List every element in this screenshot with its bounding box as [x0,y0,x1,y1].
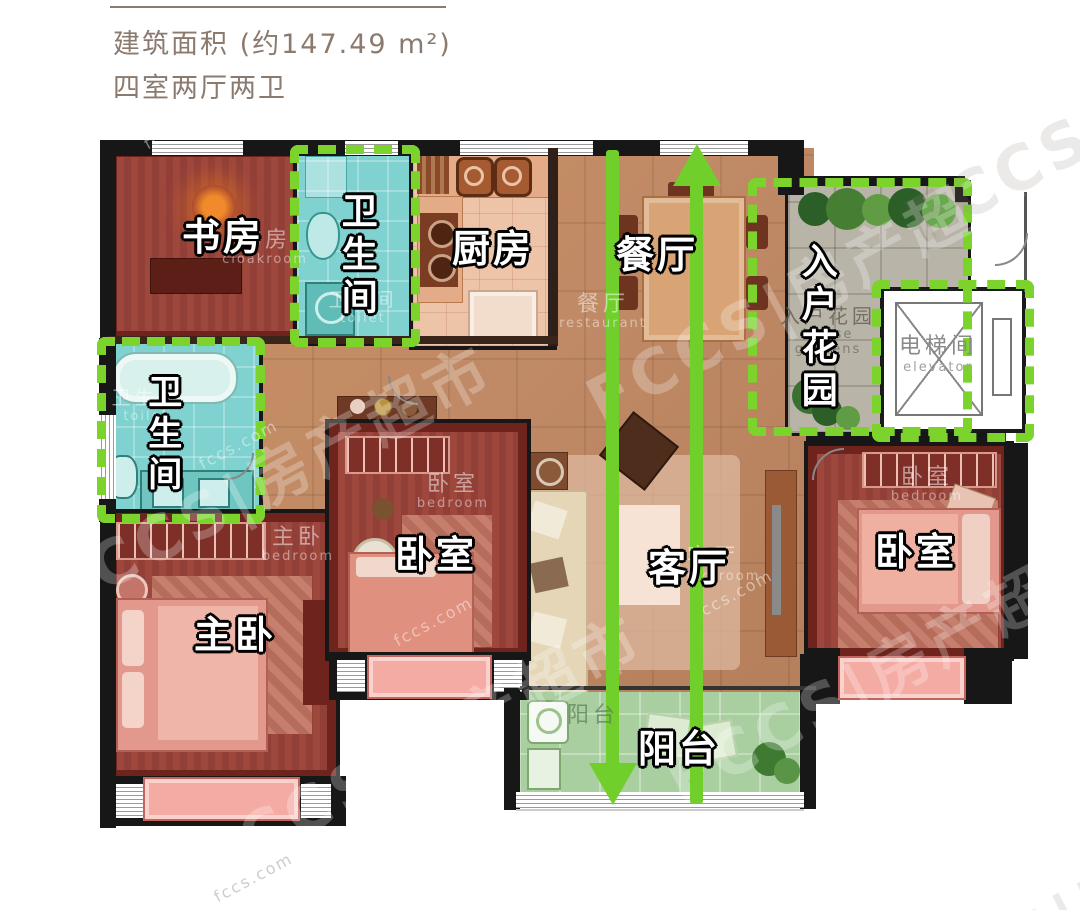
dining-chair-right1 [746,215,768,249]
window-master-right [301,784,331,818]
window-top-kitchen [460,141,593,155]
window-top-bath [345,141,398,155]
console-plate-icon [350,399,365,414]
plant8-icon [836,406,860,430]
entry-door-jamb [955,186,971,202]
wall-garden-corner [778,140,804,195]
master-pillow2-icon [122,672,144,728]
wall-balcony-right [800,654,816,809]
ghost-bedroom-mid-en: bedroom [398,497,508,512]
wall-hall-top [108,336,558,344]
console-flower-icon [374,398,392,416]
speaker-cone-icon [536,458,564,486]
ghost-master-cn: 主卧 [272,525,324,550]
label-living: 客厅 [648,549,730,589]
window-mid-left [337,660,365,692]
header-rule [110,6,446,8]
elevator-label: 电梯间 elevator [888,334,988,376]
ghost-dining-cn: 餐厅 [577,292,629,317]
airflow-arrow-up-shaft [690,184,703,804]
label-master: 主卧 [194,616,276,656]
bay-window-master [143,777,300,821]
ghost-dining-en: restaurant [545,317,661,332]
airflow-arrow-down-head [589,763,637,805]
window-balcony [516,792,804,808]
elevator-door-icon [992,318,1012,396]
label-balcony: 阳台 [638,730,720,770]
window-master-left [116,784,144,818]
layout-text: 四室两厅两卫 [113,66,287,105]
teddy-icon [372,498,394,520]
ghost-bedroom-mid-cn: 卧室 [427,472,479,497]
ghost-balcony-cn: 阳台 [567,703,619,728]
ghost-label-master: 主卧 bedroom [250,525,346,565]
wall-right-bedroom [1004,443,1028,659]
elevator-label-cn: 电梯间 [899,334,977,359]
watermark-domain: fccs.com [211,849,297,907]
ghost-label-dining: 餐厅 restaurant [545,292,661,332]
balcony-outer-line [516,809,804,811]
balcony-plant2-icon [774,758,800,784]
plant5-icon [922,194,956,228]
window-top-study [152,141,243,155]
ghost-label-bedroom-mid: 卧室 bedroom [398,472,508,512]
window-left-bath [98,415,116,499]
balcony-cabinet [527,748,561,790]
airflow-arrow-up-head [673,144,721,186]
master-wardrobe [116,522,266,560]
bay-window-right [838,656,966,700]
dining-chair-right2 [746,276,768,310]
label-kitchen: 厨房 [452,230,534,270]
ghost-label-balcony: 阳台 [558,703,628,728]
label-bedroom-right: 卧室 [875,533,957,573]
label-bedroom-mid: 卧室 [395,536,477,576]
label-dining: 餐厅 [616,236,698,276]
area-text: 建筑面积 (约147.49 m²) [113,22,452,61]
right-pillow-icon [962,514,990,604]
watermark: FCCS|房产超市 [858,739,1080,910]
ghost-bedroom-right-en: bedroom [872,490,982,505]
wall-garden-top [795,176,965,186]
ghost-bedroom-right-cn: 卧室 [901,465,953,490]
elevator-label-en: elevator [888,360,988,376]
balcony-slider-line [520,686,816,690]
sink-drain1-icon [464,166,484,186]
dish-rack-icon [417,152,449,194]
label-bath-left: 卫生间 [143,374,179,497]
vanity-basin2-icon [198,478,230,508]
label-garden: 入户花园 [797,242,835,414]
wall-right-bedroom-top [806,432,1006,446]
ghost-label-bedroom-right: 卧室 bedroom [872,465,982,505]
ghost-master-en: bedroom [250,550,346,565]
label-study: 书房 [182,218,264,258]
bay-window-mid [367,655,492,699]
floor-plan: 建筑面积 (约147.49 m²) 四室两厅两卫 [0,0,1080,910]
mid-wardrobe [345,436,450,474]
fridge-icon [468,290,538,342]
master-pillow1-icon [122,610,144,666]
master-cabinet [303,600,327,705]
label-bath-top: 卫生间 [337,192,375,321]
sink-drain2-icon [502,166,522,186]
